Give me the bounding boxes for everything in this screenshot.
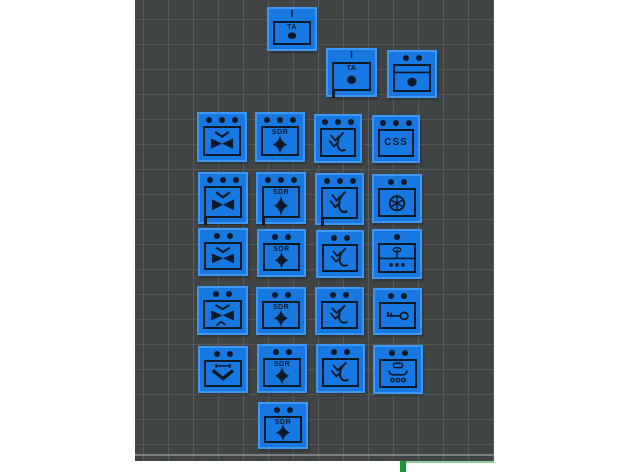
four-point-diamond-icon <box>265 360 299 385</box>
echelon-dot-icon <box>324 178 330 184</box>
unit-tile-f4[interactable] <box>373 288 422 335</box>
four-point-diamond-icon <box>266 418 300 441</box>
echelon-dot-icon <box>264 117 270 123</box>
unit-tile-e2[interactable]: SDR <box>257 229 306 277</box>
echelon-dot-icon <box>214 233 220 239</box>
spoked-wheel-icon <box>380 190 414 215</box>
echelon-dot-icon <box>394 234 400 240</box>
unit-tile-c4[interactable]: CSS <box>372 115 420 163</box>
unit-tile-d2[interactable]: SDR <box>256 172 306 224</box>
echelon-marking <box>374 177 420 187</box>
symbol-frame: TA <box>332 62 371 91</box>
post-ellipse-dots-icon <box>380 245 414 271</box>
symbol-frame <box>320 128 356 157</box>
echelon-marking <box>259 347 305 357</box>
filled-circle-icon <box>275 23 309 43</box>
unit-tile-g3[interactable] <box>316 344 365 393</box>
echelon-dot-icon <box>389 350 395 356</box>
double-chevron-curve-icon <box>323 189 356 217</box>
bar-chevron-icon <box>206 362 240 385</box>
echelon-marking <box>374 118 418 128</box>
echelon-dot-icon <box>220 177 226 183</box>
symbol-frame <box>204 360 242 387</box>
unit-tile-c2[interactable]: SDR <box>255 112 305 162</box>
build-plate-viewport[interactable]: ITAITA SDR CSS SDR SDR <box>135 0 494 461</box>
echelon-dot-icon <box>286 349 292 355</box>
four-point-diamond-icon <box>263 128 297 154</box>
echelon-dot-icon <box>402 350 408 356</box>
echelon-marking <box>260 405 306 415</box>
echelon-dot-icon <box>272 234 278 240</box>
echelon-marking <box>199 115 245 125</box>
slicer-window: ITAITA SDR CSS SDR SDR <box>0 0 628 472</box>
echelon-marking <box>257 115 303 125</box>
echelon-dot-icon <box>277 117 283 123</box>
symbol-frame: SDR <box>263 243 300 271</box>
echelon-numeral: I <box>350 51 353 61</box>
echelon-marking <box>316 117 360 127</box>
chevron-bowtie-icon <box>206 188 240 216</box>
echelon-marking <box>317 290 362 300</box>
symbol-frame: SDR <box>262 301 300 329</box>
frame-pole <box>262 216 265 225</box>
four-point-diamond-icon <box>265 245 298 269</box>
unit-tile-g1[interactable] <box>198 346 248 393</box>
echelon-dot-icon <box>219 117 225 123</box>
echelon-dot-icon <box>403 55 409 61</box>
echelon-dot-icon <box>388 293 394 299</box>
echelon-marking <box>199 289 246 299</box>
frame-pole <box>204 216 207 225</box>
echelon-dot-icon <box>322 119 328 125</box>
echelon-marking <box>258 290 304 300</box>
unit-tile-e1[interactable] <box>198 228 248 276</box>
symbol-frame: SDR <box>262 186 300 218</box>
symbol-frame <box>321 187 358 219</box>
unit-tile-c3[interactable] <box>314 114 362 163</box>
echelon-marking: I <box>328 51 375 61</box>
echelon-marking <box>318 233 362 243</box>
echelon-dot-icon <box>406 120 412 126</box>
four-point-diamond-icon <box>264 303 298 327</box>
symbol-frame <box>203 300 242 329</box>
echelon-dot-icon <box>206 117 212 123</box>
symbol-frame: SDR <box>261 126 299 156</box>
echelon-marking <box>375 348 421 358</box>
echelon-marking: I <box>269 10 315 20</box>
unit-tile-d1[interactable] <box>198 172 248 224</box>
chevron-bowtie-icon <box>205 128 239 154</box>
unit-tile-h1[interactable]: SDR <box>258 402 308 449</box>
bottom-green-line <box>406 461 494 463</box>
unit-tile-b1[interactable]: ITA <box>326 48 377 97</box>
unit-tile-e3[interactable] <box>316 230 364 278</box>
echelon-dot-icon <box>272 292 278 298</box>
unit-tile-c1[interactable] <box>197 112 247 162</box>
echelon-dot-icon <box>285 234 291 240</box>
symbol-frame: CSS <box>378 129 414 157</box>
echelon-dot-icon <box>227 233 233 239</box>
symbol-frame <box>378 243 416 273</box>
symbol-frame <box>321 301 358 329</box>
symbol-frame <box>378 188 416 217</box>
echelon-dot-icon <box>344 235 350 241</box>
unit-tile-b2[interactable] <box>387 50 437 98</box>
echelon-dot-icon <box>287 407 293 413</box>
echelon-dot-icon <box>226 291 232 297</box>
echelon-numeral: I <box>291 10 294 20</box>
echelon-dot-icon <box>273 349 279 355</box>
symbol-frame <box>203 126 241 156</box>
echelon-marking <box>200 231 246 241</box>
unit-tile-f1[interactable] <box>197 286 248 335</box>
unit-tile-d4[interactable] <box>372 174 422 223</box>
echelon-dot-icon <box>350 178 356 184</box>
echelon-marking <box>258 175 304 185</box>
symbol-frame <box>393 64 431 92</box>
echelon-dot-icon <box>388 179 394 185</box>
symbol-frame: SDR <box>263 358 301 387</box>
frame-pole <box>332 89 335 98</box>
echelon-dot-icon <box>213 291 219 297</box>
symbol-frame <box>379 359 417 388</box>
echelon-marking <box>374 232 420 242</box>
echelon-dot-icon <box>232 117 238 123</box>
echelon-dot-icon <box>214 351 220 357</box>
echelon-dot-icon <box>227 351 233 357</box>
echelon-dot-icon <box>291 177 297 183</box>
key-icon <box>381 304 414 327</box>
filled-circle-icon <box>334 64 369 89</box>
echelon-marking <box>375 291 420 301</box>
echelon-dot-icon <box>393 120 399 126</box>
frame-pole <box>321 217 324 226</box>
echelon-marking <box>200 175 246 185</box>
echelon-marking <box>200 349 246 359</box>
echelon-dot-icon <box>380 120 386 126</box>
unit-tile-f3[interactable] <box>315 287 364 335</box>
echelon-dot-icon <box>416 55 422 61</box>
unit-tile-f2[interactable]: SDR <box>256 287 306 335</box>
echelon-dot-icon <box>331 349 337 355</box>
echelon-dot-icon <box>290 117 296 123</box>
echelon-dot-icon <box>207 177 213 183</box>
four-point-diamond-icon <box>264 188 298 216</box>
echelon-dot-icon <box>274 407 280 413</box>
double-chevron-curve-icon <box>323 303 356 327</box>
plate-edge-highlight <box>135 454 494 456</box>
echelon-dot-icon <box>343 292 349 298</box>
echelon-dot-icon <box>337 178 343 184</box>
echelon-dot-icon <box>344 349 350 355</box>
chevron-bowtie-caret-icon <box>205 302 240 327</box>
symbol-frame <box>322 244 358 272</box>
double-chevron-curve-icon <box>322 130 354 155</box>
double-chevron-curve-icon <box>324 360 357 385</box>
echelon-dot-icon <box>401 293 407 299</box>
echelon-marking <box>259 232 304 242</box>
unit-tile-a1[interactable]: ITA <box>267 7 317 51</box>
echelon-marking <box>389 53 435 63</box>
echelon-dot-icon <box>233 177 239 183</box>
echelon-dot-icon <box>285 292 291 298</box>
echelon-dot-icon <box>265 177 271 183</box>
chevron-bowtie-icon <box>206 244 240 268</box>
symbol-frame <box>379 302 416 329</box>
echelon-marking <box>318 347 363 357</box>
unit-tile-d3[interactable] <box>315 173 364 225</box>
echelon-dot-icon <box>278 177 284 183</box>
double-chevron-curve-icon <box>324 246 356 270</box>
symbol-frame <box>204 186 242 218</box>
echelon-dot-icon <box>348 119 354 125</box>
unit-tile-g2[interactable]: SDR <box>257 344 307 393</box>
echelon-dot-icon <box>330 292 336 298</box>
echelon-dot-icon <box>401 179 407 185</box>
yoke-pill-dots-icon <box>381 361 415 386</box>
unit-tile-g4[interactable] <box>373 345 423 394</box>
symbol-frame <box>204 242 242 270</box>
echelon-dot-icon <box>331 235 337 241</box>
frame-label: CSS <box>380 138 412 148</box>
unit-tile-e4[interactable] <box>372 229 422 279</box>
echelon-marking <box>317 176 362 186</box>
band-circle-icon <box>395 66 429 90</box>
symbol-frame: SDR <box>264 416 302 443</box>
symbol-frame: TA <box>273 21 311 45</box>
echelon-dot-icon <box>335 119 341 125</box>
symbol-frame <box>322 358 359 387</box>
